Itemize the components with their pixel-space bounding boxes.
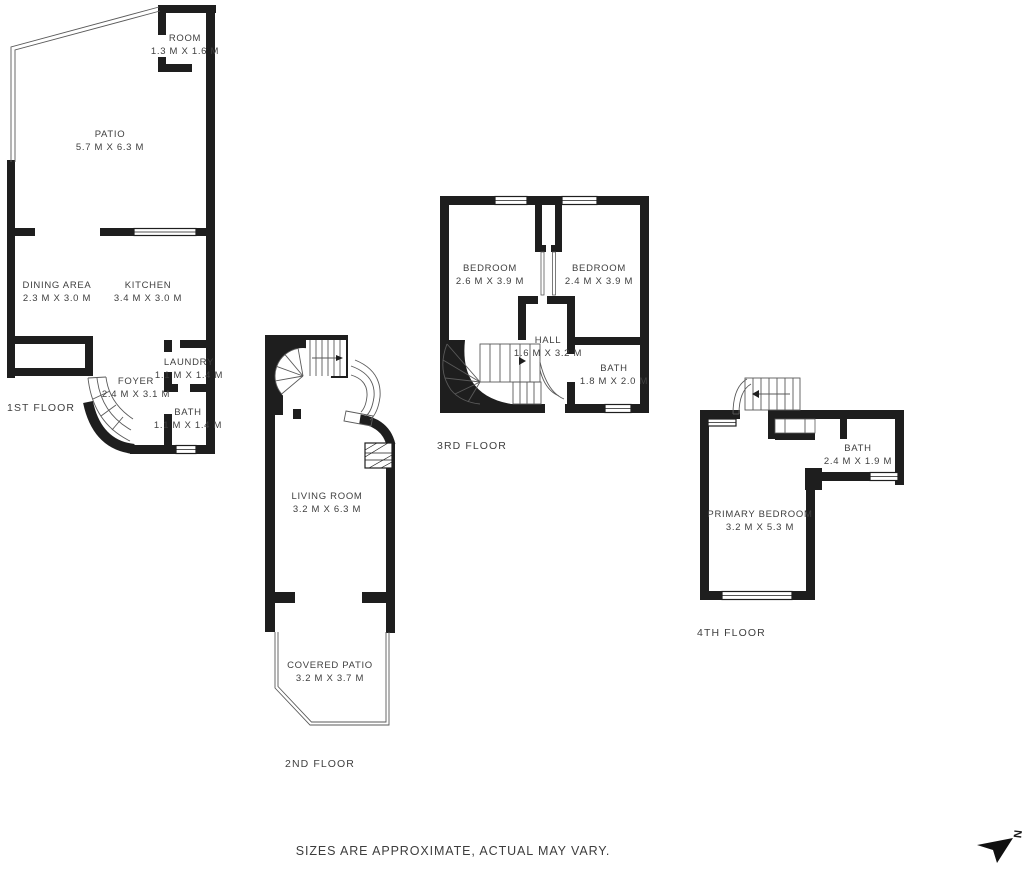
room-dims: 2.4 M X 3.1 M <box>102 388 170 401</box>
room-label-bedroom-left: BEDROOM 2.6 M X 3.9 M <box>456 262 524 288</box>
room-name: ROOM <box>151 32 219 45</box>
floor-tag-4th: 4TH FLOOR <box>697 627 766 639</box>
room-dims: 1.8 M X 2.0 M <box>580 375 648 388</box>
kitchen-window <box>134 229 196 236</box>
size-disclaimer: SIZES ARE APPROXIMATE, ACTUAL MAY VARY. <box>296 844 611 858</box>
floor-2-plan <box>260 333 405 773</box>
room-name: BATH <box>824 442 892 455</box>
room-label-hall: HALL 1.6 M X 3.2 M <box>514 334 582 360</box>
north-letter: N <box>1011 829 1024 838</box>
room-dims: 3.4 M X 3.0 M <box>114 292 182 305</box>
room-name: BATH <box>580 362 648 375</box>
room-label-foyer: FOYER 2.4 M X 3.1 M <box>102 375 170 401</box>
floor-tag-2nd: 2ND FLOOR <box>285 758 355 770</box>
room-name: LAUNDRY <box>155 356 223 369</box>
room-name: LIVING ROOM <box>291 490 362 503</box>
room-label-bedroom-right: BEDROOM 2.4 M X 3.9 M <box>565 262 633 288</box>
wardrobe <box>541 252 556 295</box>
room-name: DINING AREA <box>23 279 92 292</box>
stairs <box>733 378 800 414</box>
room-dims: 2.4 M X 1.9 M <box>824 455 892 468</box>
bath-window <box>176 446 196 454</box>
room-dims: 3.2 M X 5.3 M <box>707 521 812 534</box>
room-dims: 2.6 M X 3.9 M <box>456 275 524 288</box>
fireplace <box>365 443 392 468</box>
room-label-kitchen: KITCHEN 3.4 M X 3.0 M <box>114 279 182 305</box>
room-label-primary-bedroom: PRIMARY BEDROOM 3.2 M X 5.3 M <box>707 508 812 534</box>
room-name: KITCHEN <box>114 279 182 292</box>
room-name: HALL <box>514 334 582 347</box>
room-dims: 1.3 M X 1.6 M <box>151 45 219 58</box>
room-dims: 2.4 M X 3.9 M <box>565 275 633 288</box>
room-dims: 3.2 M X 3.7 M <box>287 672 373 685</box>
floorplan-canvas: ROOM 1.3 M X 1.6 M PATIO 5.7 M X 6.3 M D… <box>0 0 1032 872</box>
room-label-bath-4: BATH 2.4 M X 1.9 M <box>824 442 892 468</box>
room-name: PATIO <box>76 128 144 141</box>
room-name: FOYER <box>102 375 170 388</box>
room-name: PRIMARY BEDROOM <box>707 508 812 521</box>
room-name: COVERED PATIO <box>287 659 373 672</box>
room-label-covered-patio: COVERED PATIO 3.2 M X 3.7 M <box>287 659 373 685</box>
room-name: BEDROOM <box>565 262 633 275</box>
floor-4-plan <box>695 375 910 610</box>
room-dims: 1.1 M X 1.4 M <box>154 419 222 432</box>
bath-window <box>605 405 631 413</box>
room-label-dining-area: DINING AREA 2.3 M X 3.0 M <box>23 279 92 305</box>
room-label-living-room: LIVING ROOM 3.2 M X 6.3 M <box>291 490 362 516</box>
room-name: BEDROOM <box>456 262 524 275</box>
closet <box>775 419 815 433</box>
floor-4-walls <box>700 410 904 600</box>
room-dims: 1.6 M X 3.2 M <box>514 347 582 360</box>
room-label-bath-3: BATH 1.8 M X 2.0 M <box>580 362 648 388</box>
room-label-patio: PATIO 5.7 M X 6.3 M <box>76 128 144 154</box>
room-dims: 2.3 M X 3.0 M <box>23 292 92 305</box>
floor-tag-3rd: 3RD FLOOR <box>437 440 507 452</box>
room-dims: 3.2 M X 6.3 M <box>291 503 362 516</box>
room-label-bath-1: BATH 1.1 M X 1.4 M <box>154 406 222 432</box>
room-name: BATH <box>154 406 222 419</box>
floor-tag-1st: 1ST FLOOR <box>7 402 75 414</box>
room-dims: 5.7 M X 6.3 M <box>76 141 144 154</box>
room-label-room: ROOM 1.3 M X 1.6 M <box>151 32 219 58</box>
